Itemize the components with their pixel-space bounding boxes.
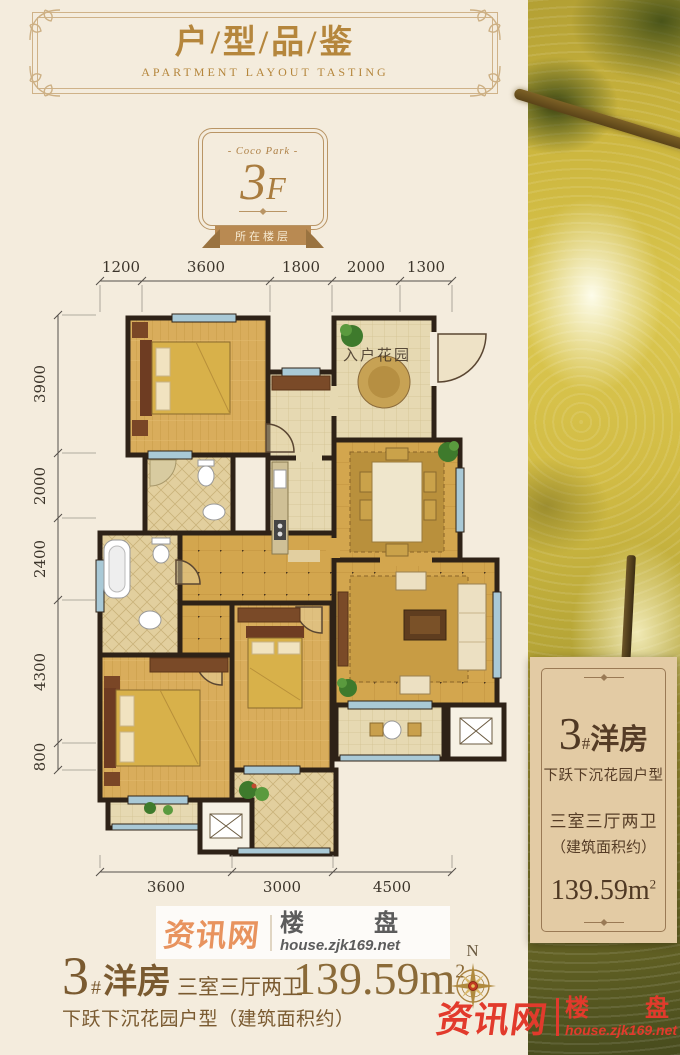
card-subtitle: 下跃下沉花园户型 <box>544 764 664 785</box>
watermark-brand: 资讯网 <box>433 991 551 1043</box>
header-frame: 户/型/品/鉴 APARTMENT LAYOUT TASTING <box>32 12 498 94</box>
page-subtitle: APARTMENT LAYOUT TASTING <box>141 65 388 80</box>
unit-hash: # <box>91 979 101 997</box>
badge-ornament <box>239 211 287 212</box>
unit-type: 洋房 <box>103 968 171 999</box>
room-label-entry-garden: 入户花园 <box>343 347 411 364</box>
watermark-site-logo-red: 资讯网 楼盘 house.zjk169.net <box>437 991 680 1043</box>
dim-top-4: 1300 <box>407 258 445 276</box>
dim-top-2: 1800 <box>282 258 320 276</box>
badge-ribbon: 所在楼层 <box>215 226 311 245</box>
page-title: 户/型/品/鉴 <box>175 26 356 61</box>
poster: 户/型/品/鉴 APARTMENT LAYOUT TASTING - Coco … <box>0 0 680 1055</box>
card-note: （建筑面积约） <box>551 836 656 857</box>
card-rooms: 三室三厅两卫 <box>550 807 658 832</box>
watermark-brand: 资讯网 <box>162 910 263 955</box>
card-ornament <box>584 677 624 678</box>
watermark-url: house.zjk169.net <box>280 937 400 954</box>
dim-left-3: 4300 <box>31 653 49 691</box>
watermark-words: 楼盘 <box>565 997 669 1021</box>
corner-flourish-icon <box>469 65 503 99</box>
floor-badge: - Coco Park - 3F <box>198 128 328 230</box>
corner-flourish-icon <box>27 7 61 41</box>
dim-top-1: 3600 <box>187 258 225 276</box>
card-title: 3#洋房 <box>559 711 649 757</box>
corner-flourish-icon <box>27 65 61 99</box>
badge-floor: 3F <box>240 158 286 207</box>
unit-description: 下跃下沉花园户型（建筑面积约） <box>62 1004 355 1031</box>
unit-number: 3 <box>62 952 89 1001</box>
dim-left-2: 2400 <box>31 540 49 578</box>
watermark-divider <box>556 998 559 1036</box>
dim-bottom-0: 3600 <box>147 878 185 896</box>
unit-info-card: 3#洋房 下跃下沉花园户型 三室三厅两卫 （建筑面积约） 139.59m2 <box>530 657 677 943</box>
card-area: 139.59m2 <box>551 875 656 907</box>
compass-north-label: N <box>442 941 504 961</box>
dim-top-0: 1200 <box>102 258 140 276</box>
dim-bottom-1: 3000 <box>263 878 301 896</box>
unit-rooms: 三室三厅两卫 <box>177 978 303 997</box>
dim-left-1: 2000 <box>31 467 49 505</box>
watermark-words: 楼盘 <box>280 912 398 936</box>
watermark-url: house.zjk169.net <box>565 1022 677 1038</box>
watermark-divider <box>270 915 272 951</box>
corner-flourish-icon <box>469 7 503 41</box>
dim-left-4: 800 <box>31 743 49 772</box>
watermark-site-logo: 资讯网 楼盘 house.zjk169.net <box>156 906 450 959</box>
dim-left-0: 3900 <box>31 365 49 403</box>
dim-top-3: 2000 <box>347 258 385 276</box>
card-ornament <box>584 922 624 923</box>
room-hall-south <box>180 603 232 655</box>
room-hall <box>180 533 334 603</box>
dim-bottom-2: 4500 <box>373 878 411 896</box>
